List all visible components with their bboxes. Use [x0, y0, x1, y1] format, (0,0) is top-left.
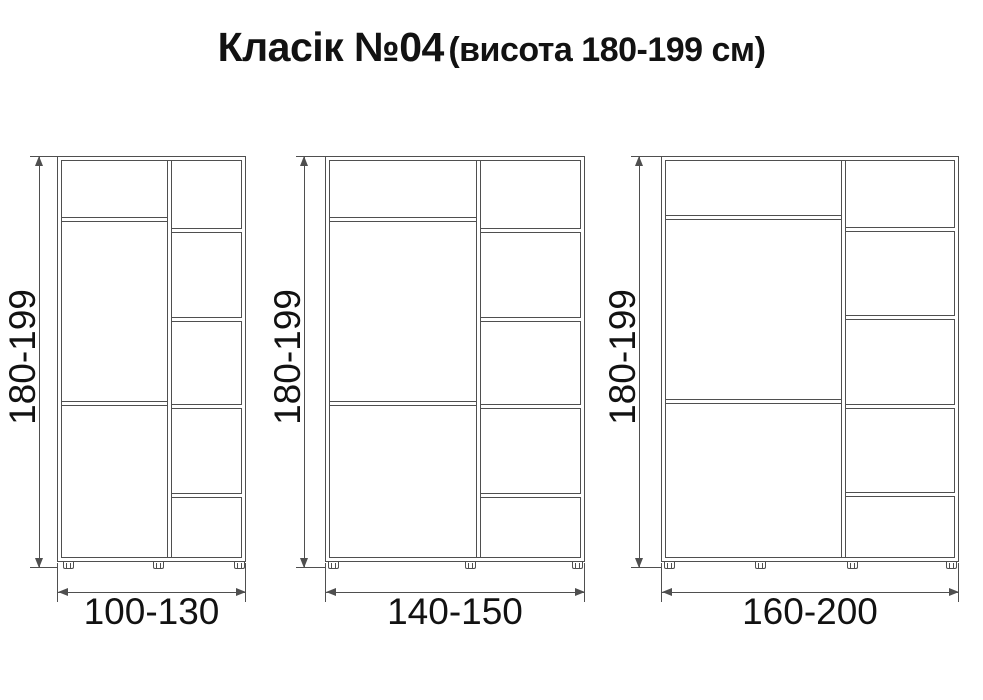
width-label: 100-130 — [57, 591, 246, 633]
extension-line — [296, 156, 325, 157]
extension-line — [296, 567, 325, 568]
height-label: 180-199 — [603, 287, 643, 427]
cabinet-foot — [664, 562, 675, 569]
shelf-line — [62, 217, 168, 222]
arrow-up-icon — [35, 156, 43, 166]
shelf-line — [666, 215, 842, 220]
wardrobe-100-130 — [57, 156, 246, 562]
cabinet-foot — [946, 562, 957, 569]
shelf-line — [481, 317, 581, 322]
cabinet-foot — [234, 562, 245, 569]
height-label: 180-199 — [3, 287, 43, 427]
cabinet-foot — [153, 562, 164, 569]
shelf-line — [846, 404, 955, 409]
cabinet-foot — [755, 562, 766, 569]
wardrobe-140-150 — [325, 156, 585, 562]
shelf-line — [330, 217, 477, 222]
cabinet-foot — [63, 562, 74, 569]
page-title: Класік №04 (висота 180-199 см) — [0, 24, 983, 71]
diagram-canvas: Класік №04 (висота 180-199 см) 180-199 1… — [0, 0, 983, 700]
width-label: 140-150 — [325, 591, 585, 633]
cabinet-foot — [465, 562, 476, 569]
shelf-line — [846, 227, 955, 232]
extension-line — [30, 156, 57, 157]
shelf-line — [172, 404, 242, 409]
cabinet-foot — [572, 562, 583, 569]
shelf-line — [481, 404, 581, 409]
extension-line — [631, 156, 661, 157]
extension-line — [30, 567, 57, 568]
wardrobe-160-200 — [661, 156, 959, 562]
title-main: Класік №04 — [218, 24, 444, 70]
shelf-line — [481, 493, 581, 498]
shelf-line — [846, 315, 955, 320]
cabinet-foot — [847, 562, 858, 569]
shelf-line — [62, 401, 168, 406]
shelf-line — [172, 317, 242, 322]
height-label: 180-199 — [268, 287, 308, 427]
width-label: 160-200 — [661, 591, 959, 633]
shelf-line — [846, 492, 955, 497]
shelf-line — [481, 228, 581, 233]
arrow-up-icon — [635, 156, 643, 166]
shelf-line — [330, 401, 477, 406]
shelf-line — [172, 493, 242, 498]
vertical-divider — [167, 161, 172, 557]
extension-line — [631, 567, 661, 568]
title-sub: (висота 180-199 см) — [448, 31, 765, 69]
arrow-up-icon — [300, 156, 308, 166]
vertical-divider — [476, 161, 481, 557]
cabinet-foot — [328, 562, 339, 569]
shelf-line — [666, 399, 842, 404]
vertical-divider — [841, 161, 846, 557]
shelf-line — [172, 228, 242, 233]
